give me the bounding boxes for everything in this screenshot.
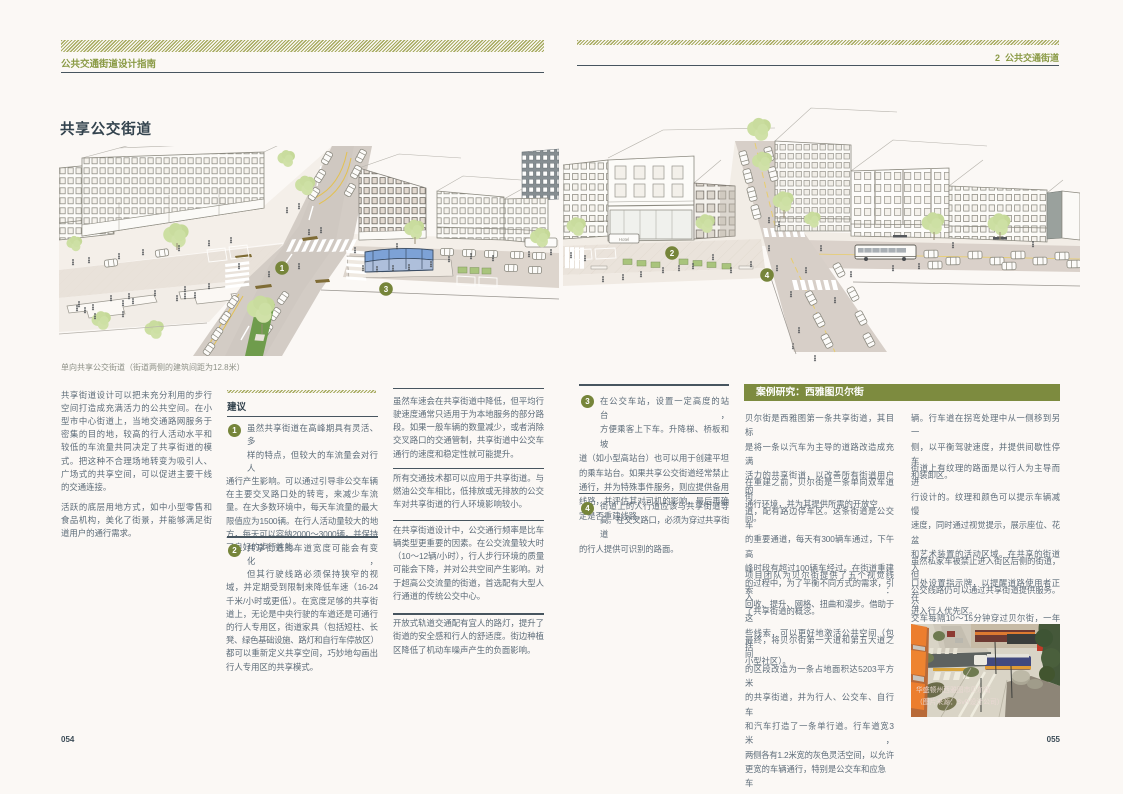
- svg-text:3: 3: [384, 285, 389, 294]
- svg-text:Hotel: Hotel: [619, 237, 630, 242]
- svg-text:1: 1: [280, 264, 285, 273]
- svg-text:华盛顿州西雅图市贝尔街: 华盛顿州西雅图市贝尔街: [916, 685, 991, 694]
- svg-text:2: 2: [670, 249, 675, 258]
- svg-text:4: 4: [765, 271, 770, 280]
- svg-text:（图片来源：SvR设计公司）: （图片来源：SvR设计公司）: [916, 697, 1004, 706]
